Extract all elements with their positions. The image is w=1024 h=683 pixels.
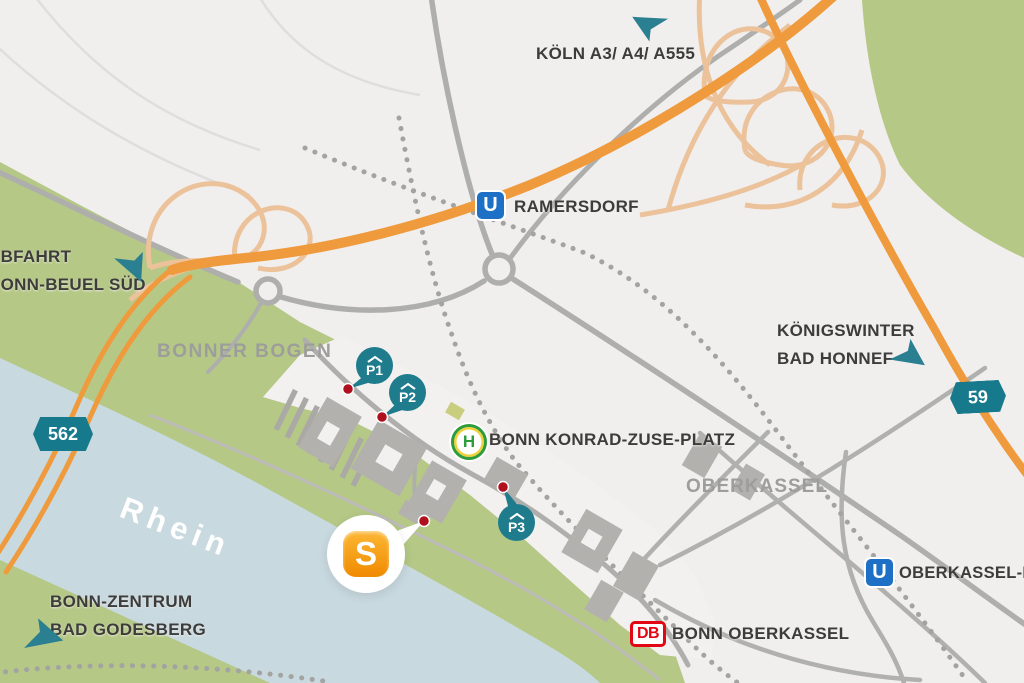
bus-stop-icon-konrad-zuse: H (451, 424, 487, 460)
parking-marker-p2: P2 (389, 374, 426, 411)
parking-label-p1: P1 (366, 364, 383, 376)
map-canvas: KÖLN A3/ A4/ A555 ABFAHRT BONN-BEUEL SÜD… (0, 0, 1024, 683)
company-logo-balloon: S (327, 515, 405, 593)
area-oberkassel: OBERKASSEL (686, 476, 828, 498)
station-konrad-zuse: BONN KONRAD-ZUSE-PLATZ (489, 430, 735, 450)
station-ramersdorf: RAMERSDORF (514, 197, 639, 217)
roundabout (485, 255, 513, 283)
zentrum-line1: BONN-ZENTRUM (50, 588, 206, 616)
ubahn-icon-oberkassel-nord: U (866, 559, 893, 586)
zentrum-line2: BAD GODESBERG (50, 616, 206, 644)
db-rail-icon-bonn-oberkassel: DB (630, 621, 666, 647)
parking-marker-p1: P1 (356, 347, 393, 384)
station-oberkassel-nord: OBERKASSEL-NORD (899, 564, 1024, 583)
company-logo-icon: S (343, 531, 389, 577)
area-bonner-bogen: BONNER BOGEN (157, 341, 332, 363)
parking-label-p2: P2 (399, 391, 416, 403)
roundabout (256, 279, 280, 303)
direction-arrow-koenigswinter-icon (885, 335, 928, 378)
destination-koeln: KÖLN A3/ A4/ A555 (536, 44, 695, 64)
anchor-dot-p3 (498, 482, 509, 493)
anchor-dot-p2 (377, 412, 388, 423)
anchor-dot-logo (419, 516, 430, 527)
parking-marker-p3: P3 (498, 504, 535, 541)
destination-bonn-zentrum: BONN-ZENTRUM BAD GODESBERG (50, 588, 206, 644)
parking-label-p3: P3 (508, 521, 525, 533)
road-sign-b562: 562 (33, 417, 93, 451)
road-sign-b59: 59 (949, 380, 1007, 415)
anchor-dot-p1 (343, 384, 354, 395)
station-bonn-oberkassel: BONN OBERKASSEL (672, 624, 849, 644)
ubahn-icon-ramersdorf: U (477, 192, 504, 219)
